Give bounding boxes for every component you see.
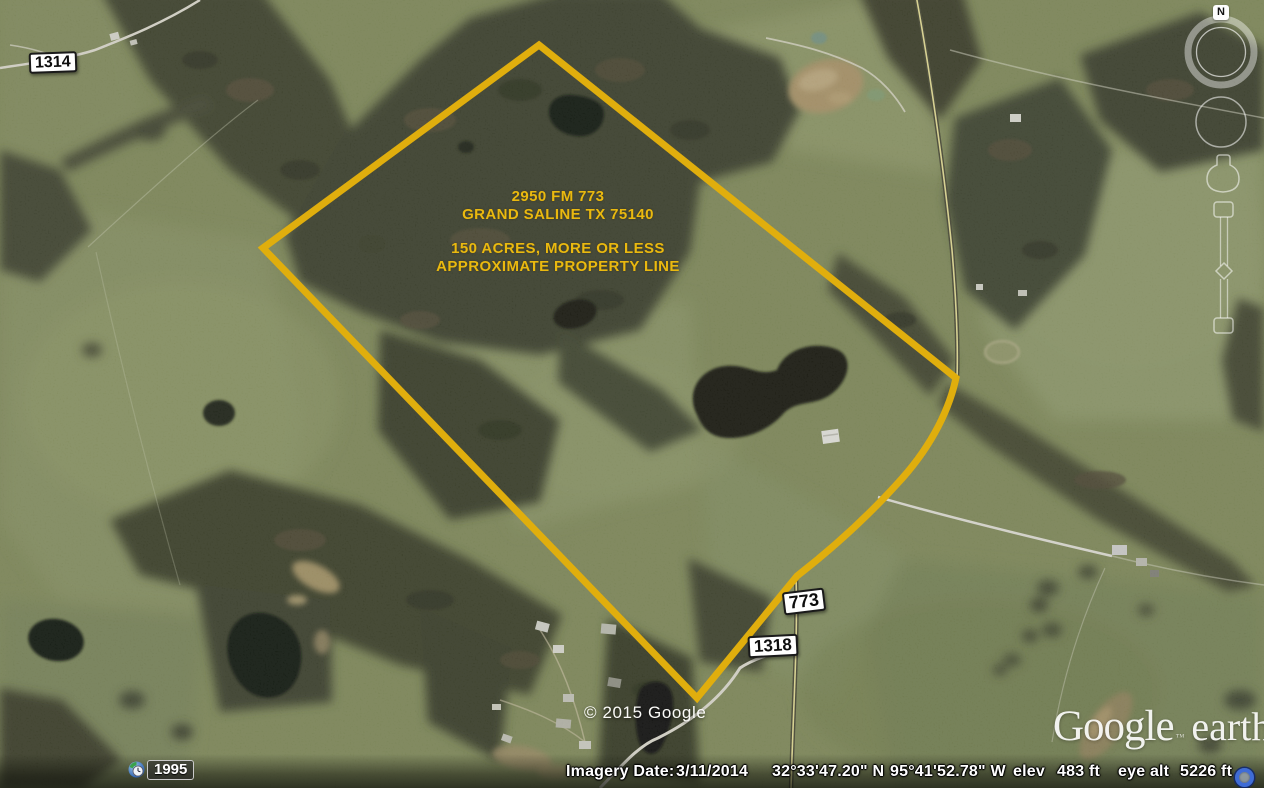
satellite-imagery <box>0 0 1264 788</box>
road-shield-1318: 1318 <box>747 634 798 659</box>
logo-earth-word: earth <box>1191 703 1264 750</box>
copyright-text: © 2015 Google <box>584 703 706 723</box>
elevation-label: elev <box>1013 763 1045 781</box>
logo-google-word: Google <box>1053 702 1174 751</box>
elevation-value: 483 ft <box>1057 763 1100 781</box>
longitude-value: 95°41'52.78" W <box>890 763 1006 781</box>
latitude-value: 32°33'47.20" N <box>772 763 884 781</box>
eye-altitude-label: eye alt <box>1118 763 1169 781</box>
eye-altitude-value: 5226 ft <box>1180 763 1232 781</box>
google-earth-logo: Google ™ earth <box>1053 702 1264 760</box>
property-address-line1: 2950 FM 773 <box>436 188 680 206</box>
property-label-gap <box>436 223 680 240</box>
compass-north-button[interactable]: N <box>1213 5 1229 20</box>
historical-imagery-icon[interactable] <box>127 760 146 779</box>
property-acreage-line: 150 ACRES, MORE OR LESS <box>436 240 680 258</box>
imagery-date-value: 3/11/2014 <box>676 763 748 781</box>
property-label: 2950 FM 773 GRAND SALINE TX 75140 150 AC… <box>436 188 680 275</box>
property-address-line2: GRAND SALINE TX 75140 <box>436 206 680 224</box>
streaming-indicator-icon <box>1235 768 1254 787</box>
map-viewport[interactable]: N 2950 FM 773 GRAND SALINE TX 75140 150 … <box>0 0 1264 788</box>
time-slider-year-badge[interactable]: 1995 <box>147 760 194 780</box>
logo-tm-mark: ™ <box>1176 732 1185 742</box>
property-boundary-note: APPROXIMATE PROPERTY LINE <box>436 258 680 276</box>
imagery-date-label: Imagery Date: <box>566 763 674 781</box>
road-shield-1314: 1314 <box>29 51 77 74</box>
